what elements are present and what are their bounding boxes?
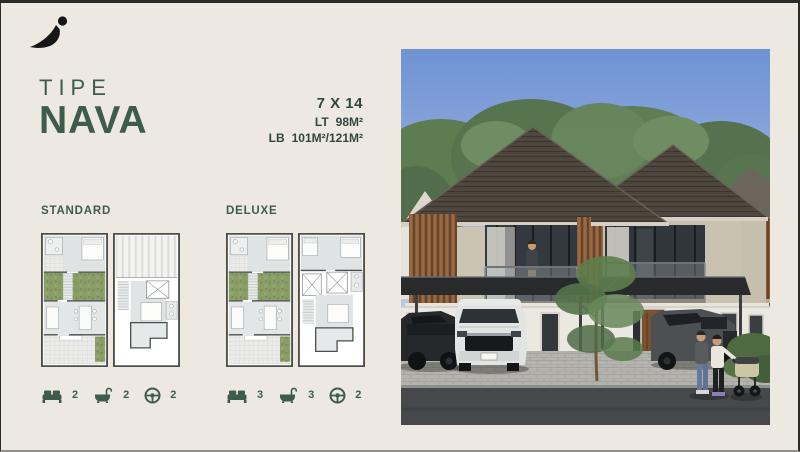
lot-dimensions: 7 X 14 [181, 95, 363, 112]
deluxe-features: 3 3 2 [226, 385, 376, 405]
lt-value: 98M² [336, 115, 363, 131]
page-title: TIPE NAVA [39, 77, 148, 142]
standard-bedrooms: 2 [41, 387, 78, 403]
variant-standard-label: STANDARD [41, 205, 191, 217]
deluxe-floor-plans [226, 233, 376, 367]
steering-wheel-icon [329, 387, 346, 404]
variant-deluxe: DELUXE [226, 205, 376, 405]
spec-row-lb: LB 101M²/121M² [181, 131, 363, 147]
title-nava: NAVA [39, 101, 148, 142]
standard-bathrooms: 2 [93, 387, 129, 403]
variant-standard: STANDARD [41, 205, 191, 405]
lb-value: 101M²/121M² [292, 131, 363, 147]
lt-label: LT [315, 115, 329, 131]
standard-carports: 2 [144, 387, 176, 404]
steering-wheel-icon [144, 387, 161, 404]
bed-count: 3 [257, 389, 263, 401]
deluxe-bedrooms: 3 [226, 387, 263, 403]
carport-count: 2 [170, 389, 176, 401]
bathtub-icon [93, 387, 114, 403]
floor-plan-standard-upper [113, 233, 180, 367]
variant-deluxe-label: DELUXE [226, 205, 376, 217]
white-suv [453, 299, 529, 374]
lb-label: LB [269, 131, 285, 147]
carport-count: 2 [355, 389, 361, 401]
deluxe-carports: 2 [329, 387, 361, 404]
brochure-slide: TIPE NAVA 7 X 14 LT 98M² LB 101M²/121M² … [0, 0, 800, 452]
bed-count: 2 [72, 389, 78, 401]
floor-plan-standard-ground [41, 233, 108, 367]
bed-icon [226, 387, 248, 403]
floor-plan-deluxe-upper [298, 233, 365, 367]
floor-plan-deluxe-ground [226, 233, 293, 367]
bathtub-icon [278, 387, 299, 403]
standard-features: 2 2 2 [41, 385, 191, 405]
bath-count: 2 [123, 389, 129, 401]
deluxe-bathrooms: 3 [278, 387, 314, 403]
exterior-photo [401, 49, 770, 425]
bath-count: 3 [308, 389, 314, 401]
bed-icon [41, 387, 63, 403]
spec-row-lt: LT 98M² [181, 115, 363, 131]
brand-logo [28, 14, 72, 52]
specs-block: 7 X 14 LT 98M² LB 101M²/121M² [181, 95, 363, 146]
title-tipe: TIPE [39, 77, 148, 99]
exterior-photo-illustration [401, 49, 770, 425]
standard-floor-plans [41, 233, 191, 367]
